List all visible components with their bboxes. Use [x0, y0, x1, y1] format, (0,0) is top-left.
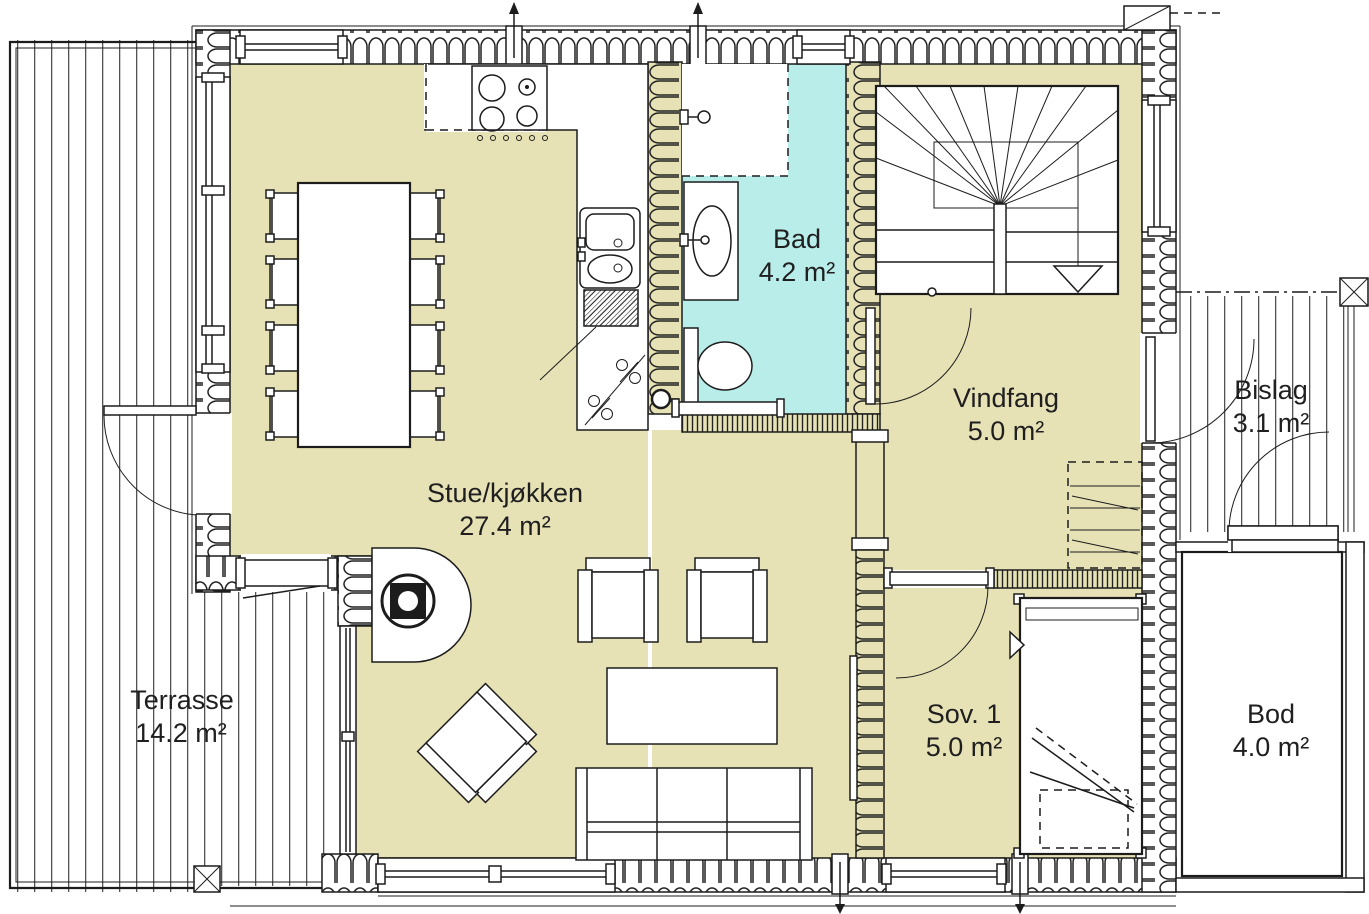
label-bislag: Bislag	[1234, 375, 1308, 405]
sofa	[576, 768, 812, 860]
window-right-stair	[1142, 96, 1176, 236]
area-sov1: 5.0 m²	[926, 732, 1003, 762]
armchair	[578, 558, 658, 642]
wall-notch-vertical	[338, 556, 372, 626]
area-vindfang: 5.0 m²	[968, 416, 1045, 446]
wall-vindfang-partition	[856, 432, 884, 550]
area-terrasse: 14.2 m²	[135, 718, 227, 748]
wall-sov1-partition	[856, 550, 884, 858]
area-bod: 4.0 m²	[1233, 732, 1310, 762]
label-stue: Stue/kjøkken	[427, 478, 583, 508]
area-bislag: 3.1 m²	[1233, 408, 1310, 438]
window-sov1	[882, 858, 1006, 892]
coffee-table	[607, 668, 777, 744]
label-bod: Bod	[1247, 699, 1295, 729]
wall-corner-bl	[322, 854, 378, 892]
label-terrasse: Terrasse	[130, 685, 234, 715]
vent-arrow-icon	[690, 2, 706, 66]
bed	[1010, 594, 1146, 858]
window-sliding-door	[376, 858, 615, 892]
washbasin-icon	[680, 182, 738, 300]
area-stue: 27.4 m²	[459, 511, 551, 541]
terrace-post-icon	[194, 866, 220, 892]
kitchen-sink-icon	[578, 208, 640, 288]
wall-sov1-top	[994, 570, 1142, 588]
bislag-porch	[1176, 278, 1368, 532]
cooktop-icon	[472, 66, 548, 141]
vent-arrow-icon	[832, 854, 848, 914]
label-sov1: Sov. 1	[927, 699, 1002, 729]
window-top-dining	[236, 30, 347, 64]
area-bad: 4.2 m²	[759, 257, 836, 287]
floor-plan-page: Stue/kjøkken 27.4 m² Bad 4.2 m² Vindfang…	[0, 0, 1369, 914]
label-bad: Bad	[773, 224, 821, 254]
tv-icon	[850, 656, 857, 800]
window-left-wall	[196, 73, 230, 373]
window-bath	[793, 30, 854, 64]
door-terrace-notch	[236, 554, 337, 598]
vent-arrow-icon	[1012, 854, 1028, 914]
kitchen-drainer	[584, 290, 638, 326]
label-vindfang: Vindfang	[953, 383, 1059, 413]
window-terrace-glass-wall	[340, 626, 356, 854]
floor-plan: Stue/kjøkken 27.4 m² Bad 4.2 m² Vindfang…	[0, 0, 1369, 914]
armchair	[687, 558, 767, 642]
staircase	[876, 86, 1118, 296]
wall-bath-left	[648, 62, 682, 414]
shower-area	[682, 64, 788, 176]
vent-arrow-icon	[506, 2, 522, 66]
bislag-post-icon	[1340, 278, 1368, 306]
stair-newel-post	[994, 204, 1006, 294]
